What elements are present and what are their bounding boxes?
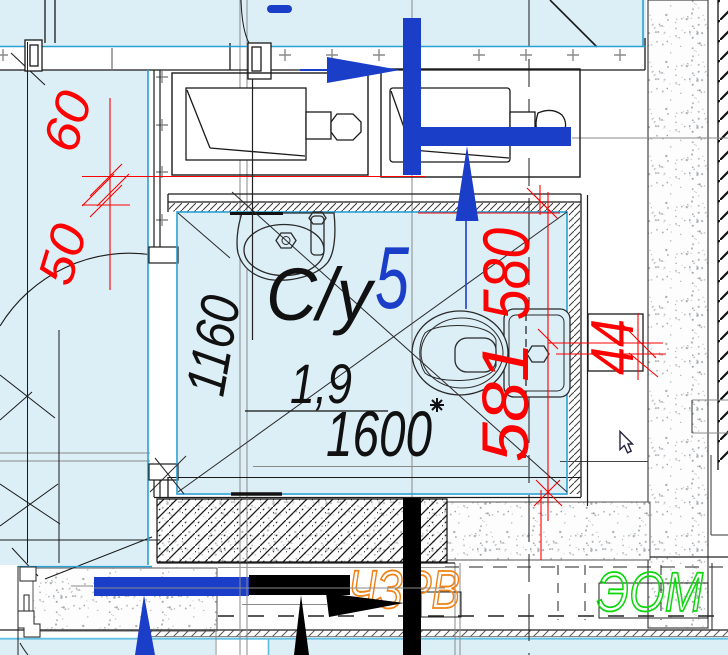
svg-text:5: 5 [375,228,410,327]
svg-text:580: 580 [469,228,543,320]
svg-text:581: 581 [468,342,542,462]
svg-text:44: 44 [579,319,646,375]
svg-text:1600: 1600 [326,398,432,470]
svg-text:С/у: С/у [266,253,376,336]
svg-text:ЭОМ: ЭОМ [597,560,703,623]
